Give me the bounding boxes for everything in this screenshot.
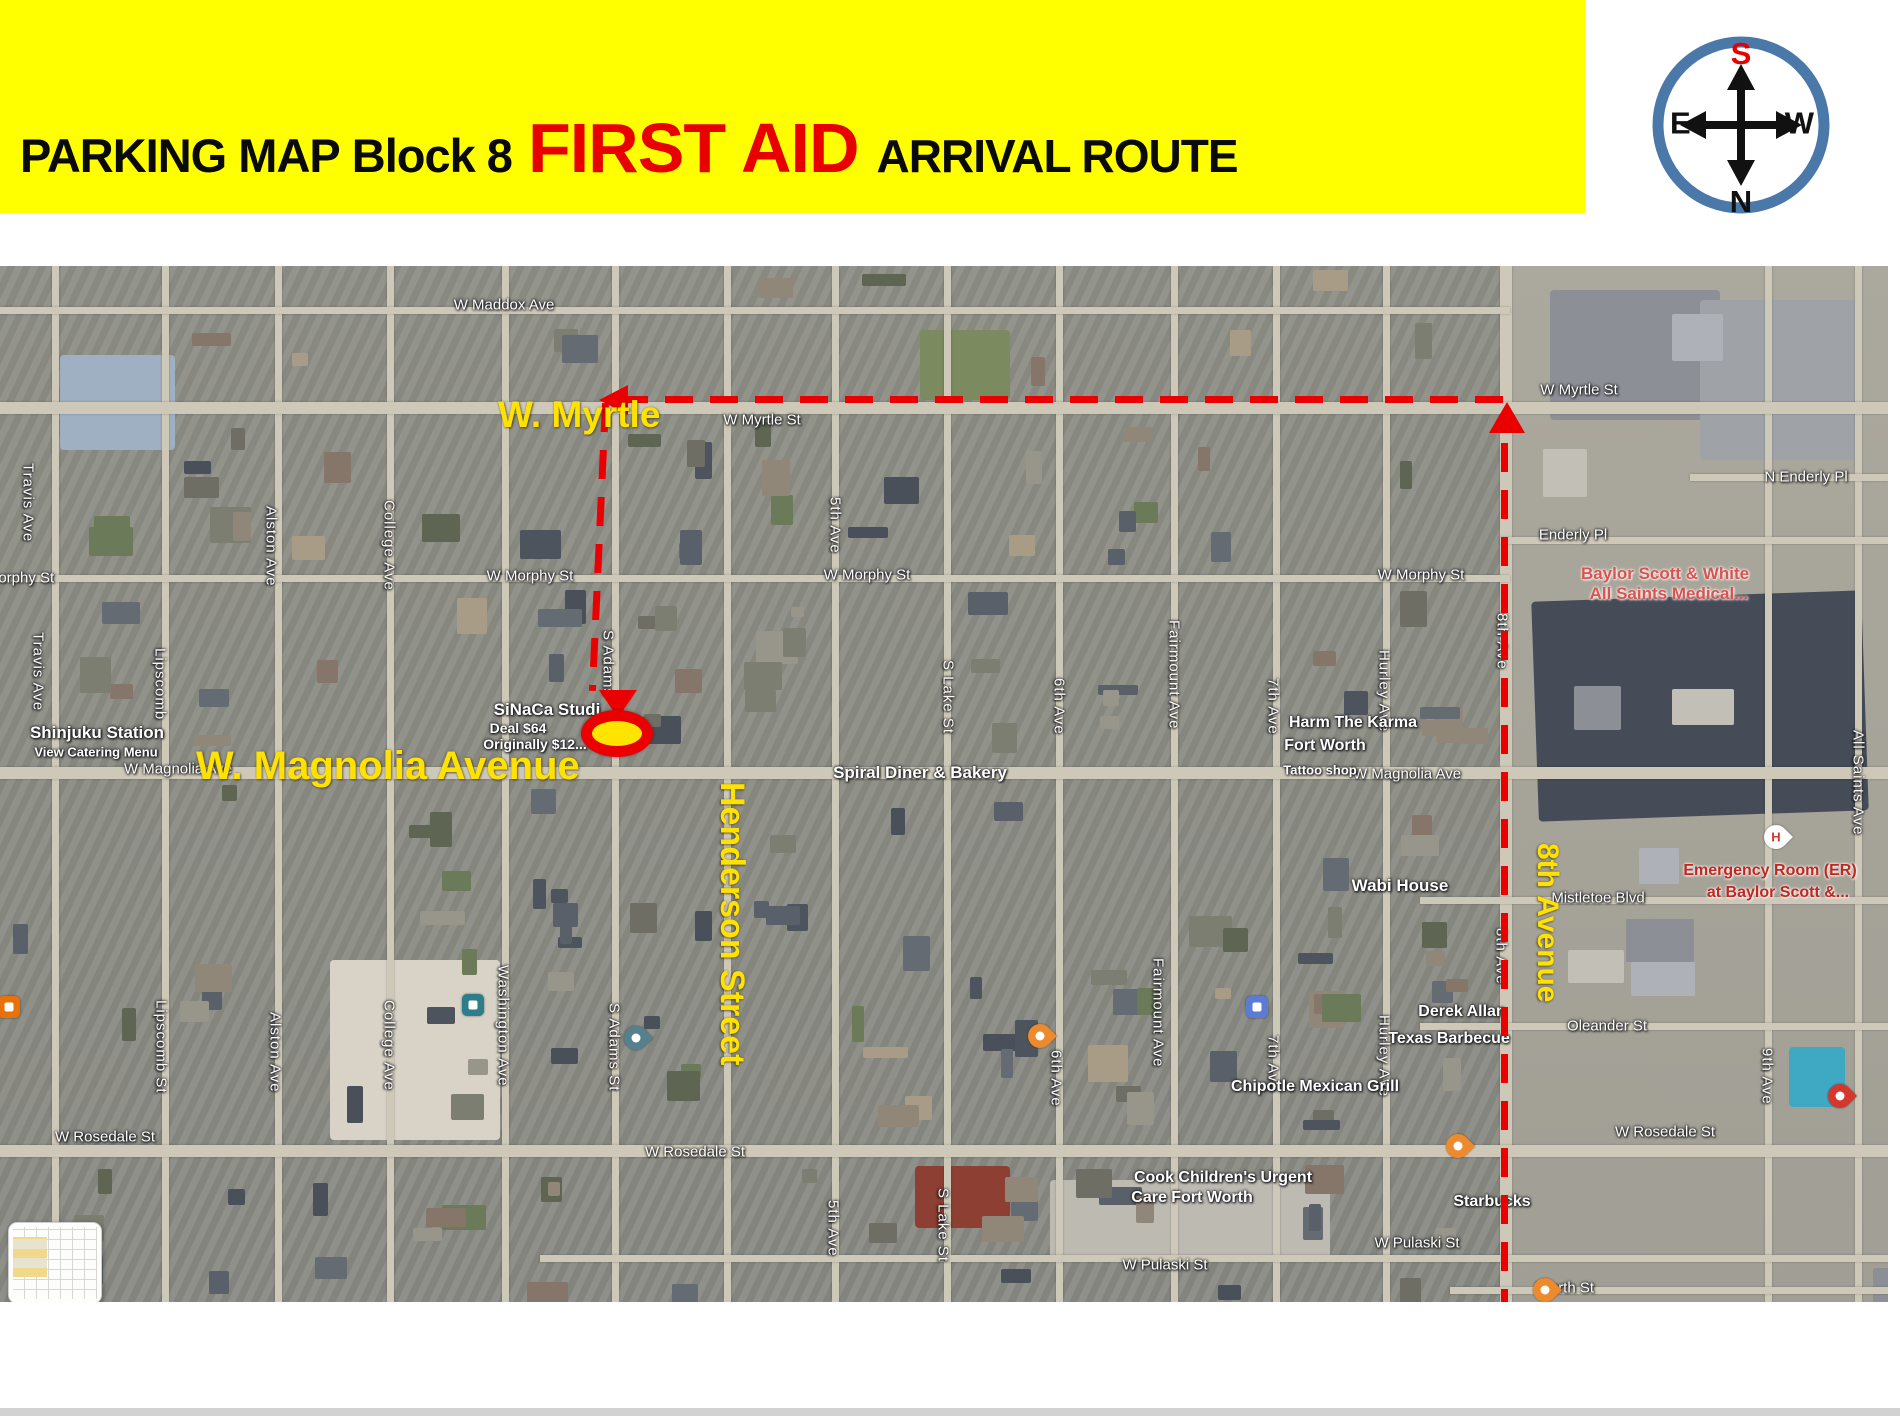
route-label: W. Myrtle (498, 394, 660, 436)
compass-north: N (1730, 184, 1752, 220)
map-building (1873, 1268, 1888, 1302)
map-building (451, 1094, 484, 1120)
map-building (848, 527, 888, 538)
poi-label: Spiral Diner & Bakery (833, 763, 1007, 783)
map-building (992, 723, 1017, 753)
map-building (233, 512, 251, 541)
destination-marker (581, 710, 653, 757)
street-label-vertical: 5th Ave (827, 497, 844, 554)
map-building (324, 452, 351, 483)
map-building (1443, 1058, 1461, 1091)
map-building (1631, 962, 1695, 996)
street-label-vertical: Alston Ave (267, 1012, 284, 1093)
street-label-vertical: 6th Ave (1048, 1050, 1065, 1107)
street-label: W Morphy St (824, 567, 911, 584)
poi-label: Cook Children's Urgent (1134, 1169, 1312, 1187)
map-building (1031, 357, 1045, 386)
map-building (1103, 690, 1119, 706)
street-label-vertical: College Ave (381, 500, 398, 591)
map-building (192, 333, 231, 346)
map-building (667, 1071, 700, 1101)
map-building (1009, 535, 1035, 556)
map-building (420, 911, 465, 925)
street-label: W Pulaski St (1374, 1235, 1459, 1252)
poi-label: Tattoo shop (1283, 763, 1356, 778)
map-building (442, 871, 471, 891)
map-building (766, 906, 800, 925)
map-building (1091, 970, 1127, 985)
map-building (231, 428, 245, 450)
street-label-vertical: Alston Ave (263, 506, 280, 587)
map-building (1700, 300, 1860, 460)
street-label-vertical: College Ave (381, 1000, 398, 1091)
map-building (1001, 1049, 1013, 1078)
map-building (317, 660, 338, 683)
poi-label: Wabi House (1352, 876, 1449, 896)
map-building (1426, 951, 1445, 966)
poi-label: Baylor Scott & White (1581, 564, 1749, 584)
map-building (644, 1016, 660, 1029)
title-parking-map: PARKING MAP (20, 128, 340, 183)
map-building (970, 977, 982, 999)
street (0, 1145, 1888, 1157)
map-building (863, 1047, 908, 1058)
map-building (1568, 950, 1624, 983)
poi-label: View Catering Menu (34, 745, 157, 760)
map-building (791, 607, 804, 617)
map-building (1100, 716, 1119, 729)
map-building (462, 949, 477, 975)
map-building (199, 689, 229, 707)
title-first-aid: FIRST AID (528, 108, 859, 188)
map-building (1313, 651, 1336, 666)
street (0, 575, 1510, 582)
poi-label: Harm The Karma (1289, 714, 1417, 732)
map-building (695, 911, 712, 941)
map-building (903, 936, 930, 971)
map-building (1119, 511, 1136, 532)
title-block-number: Block 8 (352, 128, 512, 183)
poi-label: Fort Worth (1284, 737, 1365, 755)
map-building (110, 684, 133, 699)
street-label: N Enderly Pl (1764, 469, 1847, 486)
map-building (745, 690, 776, 712)
map-building (102, 602, 140, 624)
map-building (520, 530, 561, 559)
map-building (538, 609, 582, 627)
street-label: Mistletoe Blvd (1551, 890, 1644, 907)
map-building (409, 825, 439, 838)
map-building (1415, 323, 1432, 359)
satellite-map: W Maddox AveW Myrtle StW Myrtle StMorphy… (0, 266, 1888, 1302)
map-building (1005, 1177, 1038, 1202)
map-building (548, 972, 574, 991)
map-building (457, 598, 487, 634)
map-building (1108, 549, 1125, 565)
map-building (347, 1086, 363, 1123)
map-building (1446, 979, 1468, 992)
map-building (1313, 270, 1348, 291)
street-label: W Rosedale St (1615, 1124, 1715, 1141)
street-label-vertical: 7th Ave (1265, 678, 1282, 735)
map-park (920, 330, 1010, 400)
poi-label: Deal $64 (490, 720, 547, 736)
map-building (80, 657, 111, 693)
map-building (771, 495, 793, 525)
map-building (1400, 1278, 1421, 1302)
street-label-vertical: Washington Ave (495, 965, 512, 1087)
map-building (762, 460, 790, 496)
street-label: Enderly Pl (1539, 527, 1607, 544)
map-building (994, 802, 1023, 821)
map-building (1088, 1045, 1128, 1082)
map-building (426, 1208, 466, 1227)
street-label: W Pulaski St (1122, 1257, 1207, 1274)
map-building (427, 1007, 455, 1024)
title-banner: PARKING MAP Block 8 FIRST AID ARRIVAL RO… (0, 0, 1585, 213)
map-building (228, 1189, 245, 1205)
route-arrow-up-icon (1489, 402, 1525, 433)
map-building (313, 1183, 328, 1216)
poi-label: Shinjuku Station (30, 723, 164, 743)
map-building (1215, 988, 1231, 999)
map-building (852, 1006, 864, 1042)
map-building (884, 477, 919, 504)
compass-south: S (1731, 36, 1752, 72)
street-label: Oleander St (1567, 1018, 1647, 1035)
map-building (744, 662, 782, 690)
map-building (1230, 330, 1251, 356)
map-building (1076, 1169, 1112, 1198)
map-building (891, 808, 905, 835)
street-label: W Maddox Ave (454, 297, 555, 314)
compass-east: E (1670, 106, 1691, 142)
poi-label: at Baylor Scott &... (1707, 884, 1849, 902)
map-building (1672, 314, 1723, 361)
street (540, 1255, 1888, 1262)
map-building (527, 1282, 568, 1302)
map-building (209, 1271, 229, 1294)
map-building (1134, 502, 1158, 523)
street-label: W Rosedale St (645, 1144, 745, 1161)
map-building (180, 1001, 209, 1022)
map-building (184, 461, 211, 474)
route-line-myrtle (620, 396, 1508, 403)
map-building (531, 789, 556, 814)
poi-label: Starbucks (1453, 1193, 1530, 1211)
map-building (1198, 447, 1210, 471)
map-building (551, 1048, 578, 1064)
map-building (759, 278, 793, 298)
street-label-vertical: S Adams St (606, 1003, 623, 1091)
title-arrival-route: ARRIVAL ROUTE (877, 129, 1238, 183)
map-building (672, 1284, 698, 1302)
street-label-vertical: S Lake St (935, 1188, 952, 1262)
map-building (1420, 707, 1460, 719)
map-building (1543, 449, 1587, 497)
street-label-vertical: Lipscomb St (153, 1000, 170, 1094)
map-building (754, 901, 769, 918)
map-building (971, 659, 1000, 673)
street-label-vertical: 5th Ave (825, 1200, 842, 1257)
map-building (13, 924, 28, 954)
street-label-vertical: S Adams (600, 630, 617, 697)
map-building (1323, 858, 1349, 891)
map-building (675, 669, 702, 693)
street-label: W Magnolia Ave (1353, 766, 1461, 783)
street (0, 307, 1510, 314)
street-label-vertical: 6th Ave (1051, 678, 1068, 735)
map-building (98, 1169, 112, 1194)
map-building (983, 1034, 1018, 1051)
slide-right-margin (1888, 0, 1900, 1416)
slide: PARKING MAP Block 8 FIRST AID ARRIVAL RO… (0, 0, 1900, 1416)
map-building (94, 516, 130, 552)
street-label-vertical: S Lake St (940, 660, 957, 734)
map-building (1218, 1285, 1241, 1300)
map-building (1422, 922, 1447, 948)
street-label: Morphy St (0, 570, 54, 587)
map-building (1400, 591, 1427, 627)
street-label: W Myrtle St (1540, 382, 1618, 399)
poi-label: Care Fort Worth (1131, 1189, 1252, 1207)
route-label: Henderson Street (712, 782, 751, 1065)
map-building (1026, 451, 1042, 484)
bottom-divider (0, 1408, 1900, 1416)
street-label-vertical: Fairmount Ave (1150, 958, 1167, 1067)
street (1420, 1023, 1888, 1030)
map-building (869, 1223, 897, 1243)
map-building (560, 914, 572, 944)
poi-label: Texas Barbecue (1388, 1030, 1510, 1048)
map-building (982, 1216, 1024, 1242)
map-building (1322, 994, 1361, 1022)
street-label-vertical: All Saints Ave (1850, 730, 1867, 835)
street-label-vertical: Travis Ave (30, 632, 47, 711)
map-building (1223, 928, 1248, 952)
map-building (680, 530, 702, 565)
map-building (1001, 1269, 1031, 1283)
map-building (422, 514, 460, 542)
map-building (562, 335, 598, 363)
map-building (1298, 953, 1333, 964)
map-building (413, 1228, 442, 1241)
route-label: W. Magnolia Avenue (196, 744, 580, 789)
map-building (533, 879, 546, 909)
street-label: W Myrtle St (723, 412, 801, 429)
street (1450, 1287, 1888, 1294)
map-building (1461, 728, 1488, 744)
street (0, 402, 1888, 414)
route-line-8th-avenue (1501, 443, 1508, 1302)
map-building (802, 1169, 817, 1183)
map-building (549, 654, 564, 682)
map-building (968, 592, 1008, 615)
map-building (122, 1008, 136, 1041)
map-building (551, 889, 568, 903)
map-building (1127, 1092, 1154, 1125)
map-building (1211, 532, 1231, 562)
poi-label: All Saints Medical... (1590, 584, 1749, 604)
map-building (1639, 848, 1679, 884)
map-building (184, 477, 219, 498)
map-building (1303, 1120, 1340, 1130)
compass-rose: S N E W (1650, 34, 1832, 216)
route-label: 8th Avenue (1530, 843, 1564, 1002)
map-building (468, 1059, 488, 1075)
street-label-vertical: 9th Ave (1759, 1048, 1776, 1105)
map-building (687, 440, 705, 467)
street-label-vertical: Fairmount Ave (1166, 620, 1183, 729)
map-building (1123, 427, 1152, 442)
wabi-house-pin-icon (1441, 1129, 1475, 1163)
poi-label: SiNaCa Studi (494, 700, 601, 720)
street-label: W Morphy St (1378, 567, 1465, 584)
sinaca-school-icon-icon (462, 994, 484, 1016)
map-building (770, 835, 796, 853)
map-building (1626, 919, 1694, 962)
map-building (1574, 686, 1621, 730)
map-building (1309, 1204, 1321, 1231)
street-label: W Rosedale St (55, 1129, 155, 1146)
map-building (783, 628, 806, 657)
map-inset-widget (8, 1222, 102, 1302)
map-building (1400, 461, 1412, 489)
map-building (292, 536, 325, 560)
map-building (862, 274, 906, 286)
tattoo-shop-icon-icon (1246, 996, 1268, 1018)
map-building (1344, 691, 1368, 715)
map-building (1401, 835, 1439, 856)
compass-west: W (1785, 106, 1814, 142)
map-building (1328, 907, 1342, 938)
poi-label: Chipotle Mexican Grill (1231, 1078, 1399, 1096)
map-building (292, 353, 308, 366)
poi-label: Derek Allan (1418, 1003, 1505, 1021)
map-building (195, 964, 232, 992)
map-building (878, 1105, 919, 1127)
map-building (315, 1257, 347, 1279)
map-building (548, 1182, 560, 1196)
street-label-vertical: Lipscomb (152, 648, 169, 720)
map-building (1672, 689, 1734, 725)
shinjuku-restaurant-icon-icon (0, 996, 20, 1018)
street-label: W Morphy St (487, 568, 574, 585)
map-building (655, 606, 677, 631)
street-label-vertical: Travis Ave (20, 463, 37, 542)
map-building (630, 903, 657, 933)
inset-cells (13, 1237, 47, 1277)
poi-label: Emergency Room (ER) (1683, 862, 1856, 880)
